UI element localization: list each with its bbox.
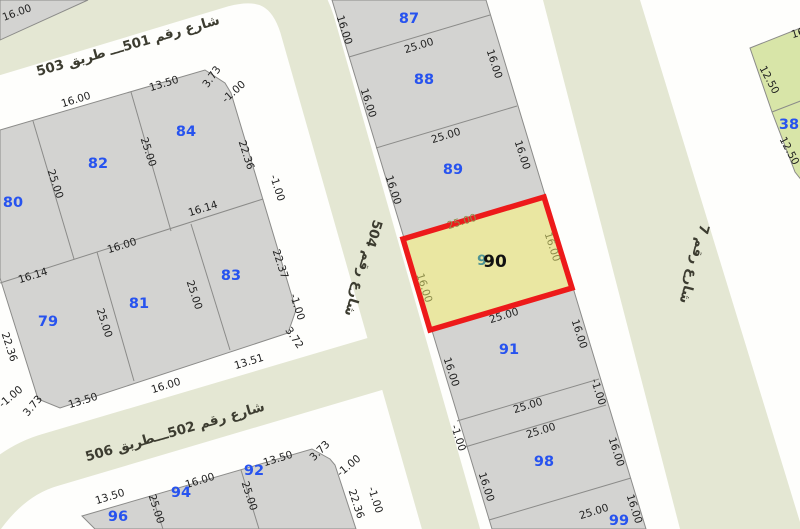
dim-label: 13.51 — [233, 352, 265, 372]
parcel-number: 88 — [414, 72, 434, 88]
parcel-number: 38 — [779, 117, 799, 133]
parcel-90-number: 90 — [483, 252, 507, 272]
parcel-number: 96 — [108, 509, 128, 525]
dim-label: 3.72 — [282, 325, 305, 351]
dim-label: 16.00 — [150, 376, 182, 396]
parcel-number: 99 — [609, 513, 629, 529]
parcel-number: 91 — [499, 342, 519, 358]
parcel-number: 89 — [443, 162, 463, 178]
cadastral-map: 16.00 16.00 13.50 3.73 -1.00 22.36 -1.00… — [0, 0, 800, 529]
parcel-number: 83 — [221, 268, 241, 284]
parcel-number: 92 — [244, 463, 264, 479]
parcel-number: 84 — [176, 124, 196, 140]
parcel-number: 79 — [38, 314, 58, 330]
parcel-number: 87 — [399, 11, 419, 27]
parcel-number: 80 — [3, 195, 23, 211]
dim-label: -1.00 — [267, 173, 287, 203]
map-canvas[interactable]: 16.00 16.00 13.50 3.73 -1.00 22.36 -1.00… — [0, 0, 800, 529]
dim-label: -1.00 — [335, 453, 364, 480]
dim-label: -1.00 — [0, 384, 25, 411]
dim-label: -1.00 — [365, 485, 385, 515]
parcel-number: 94 — [171, 485, 191, 501]
parcel-number: 81 — [129, 296, 149, 312]
parcel-number: 82 — [88, 156, 108, 172]
dim-label: 22.36 — [0, 331, 19, 364]
parcel-number: 98 — [534, 454, 554, 470]
